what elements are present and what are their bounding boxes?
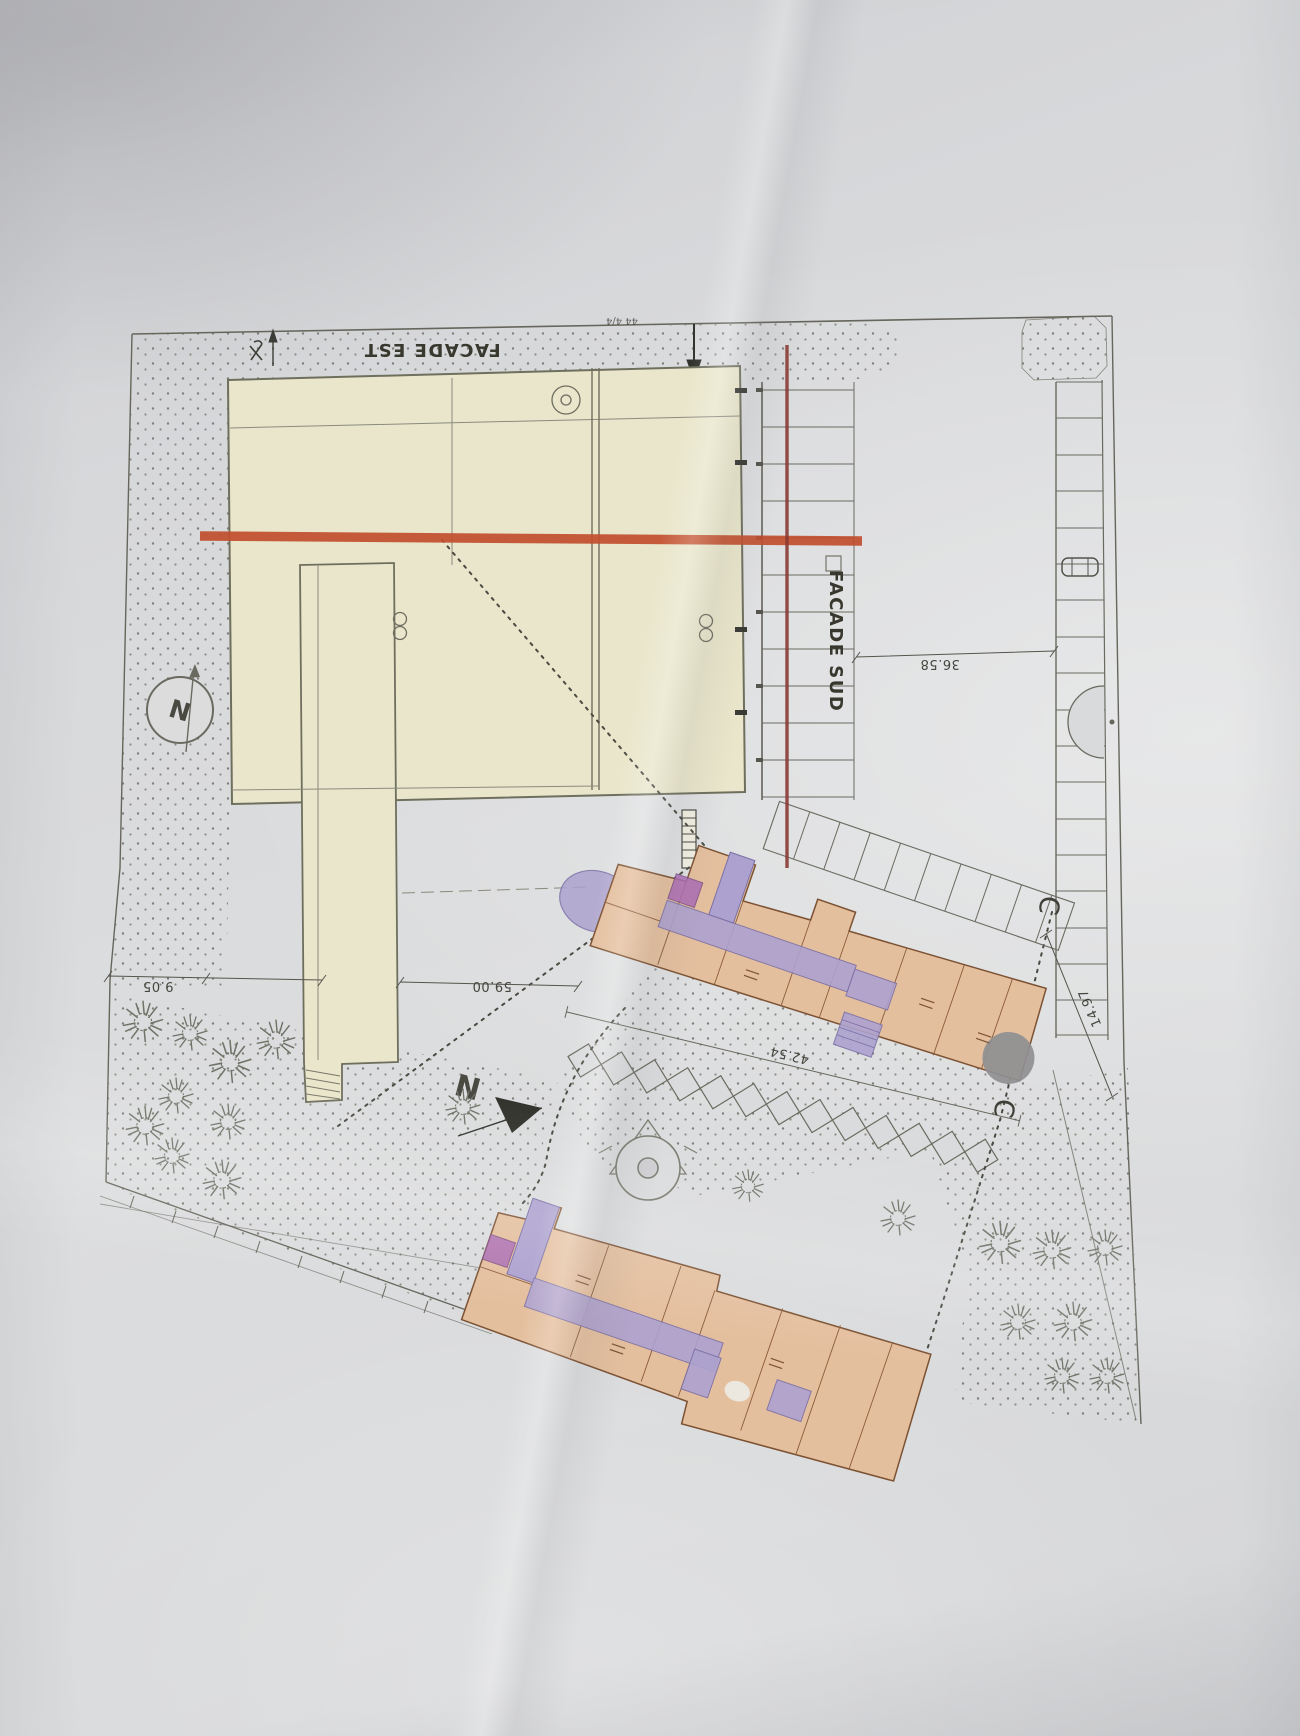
site-plan-photo: 42.54: [0, 0, 1300, 1736]
dim-east-gap: 36.58: [920, 656, 960, 671]
red-highlight-line: [200, 536, 862, 541]
new-building-2: [453, 1189, 943, 1495]
dim-building-length: 59.00: [472, 978, 512, 993]
facade-sud-label: FACADE SUD: [825, 570, 846, 712]
site-plan-drawing: 42.54: [0, 0, 1300, 1736]
dim-new-block-depth: 14.97: [1076, 987, 1105, 1029]
facade-est-label: FACADE EST: [363, 339, 500, 360]
parking-row-far-east: [1056, 380, 1115, 1040]
dim-top-handwritten: 44 4/4: [606, 315, 638, 326]
section-c-top: C: [1032, 893, 1066, 917]
dim-left-offset: 9.05: [143, 978, 174, 993]
